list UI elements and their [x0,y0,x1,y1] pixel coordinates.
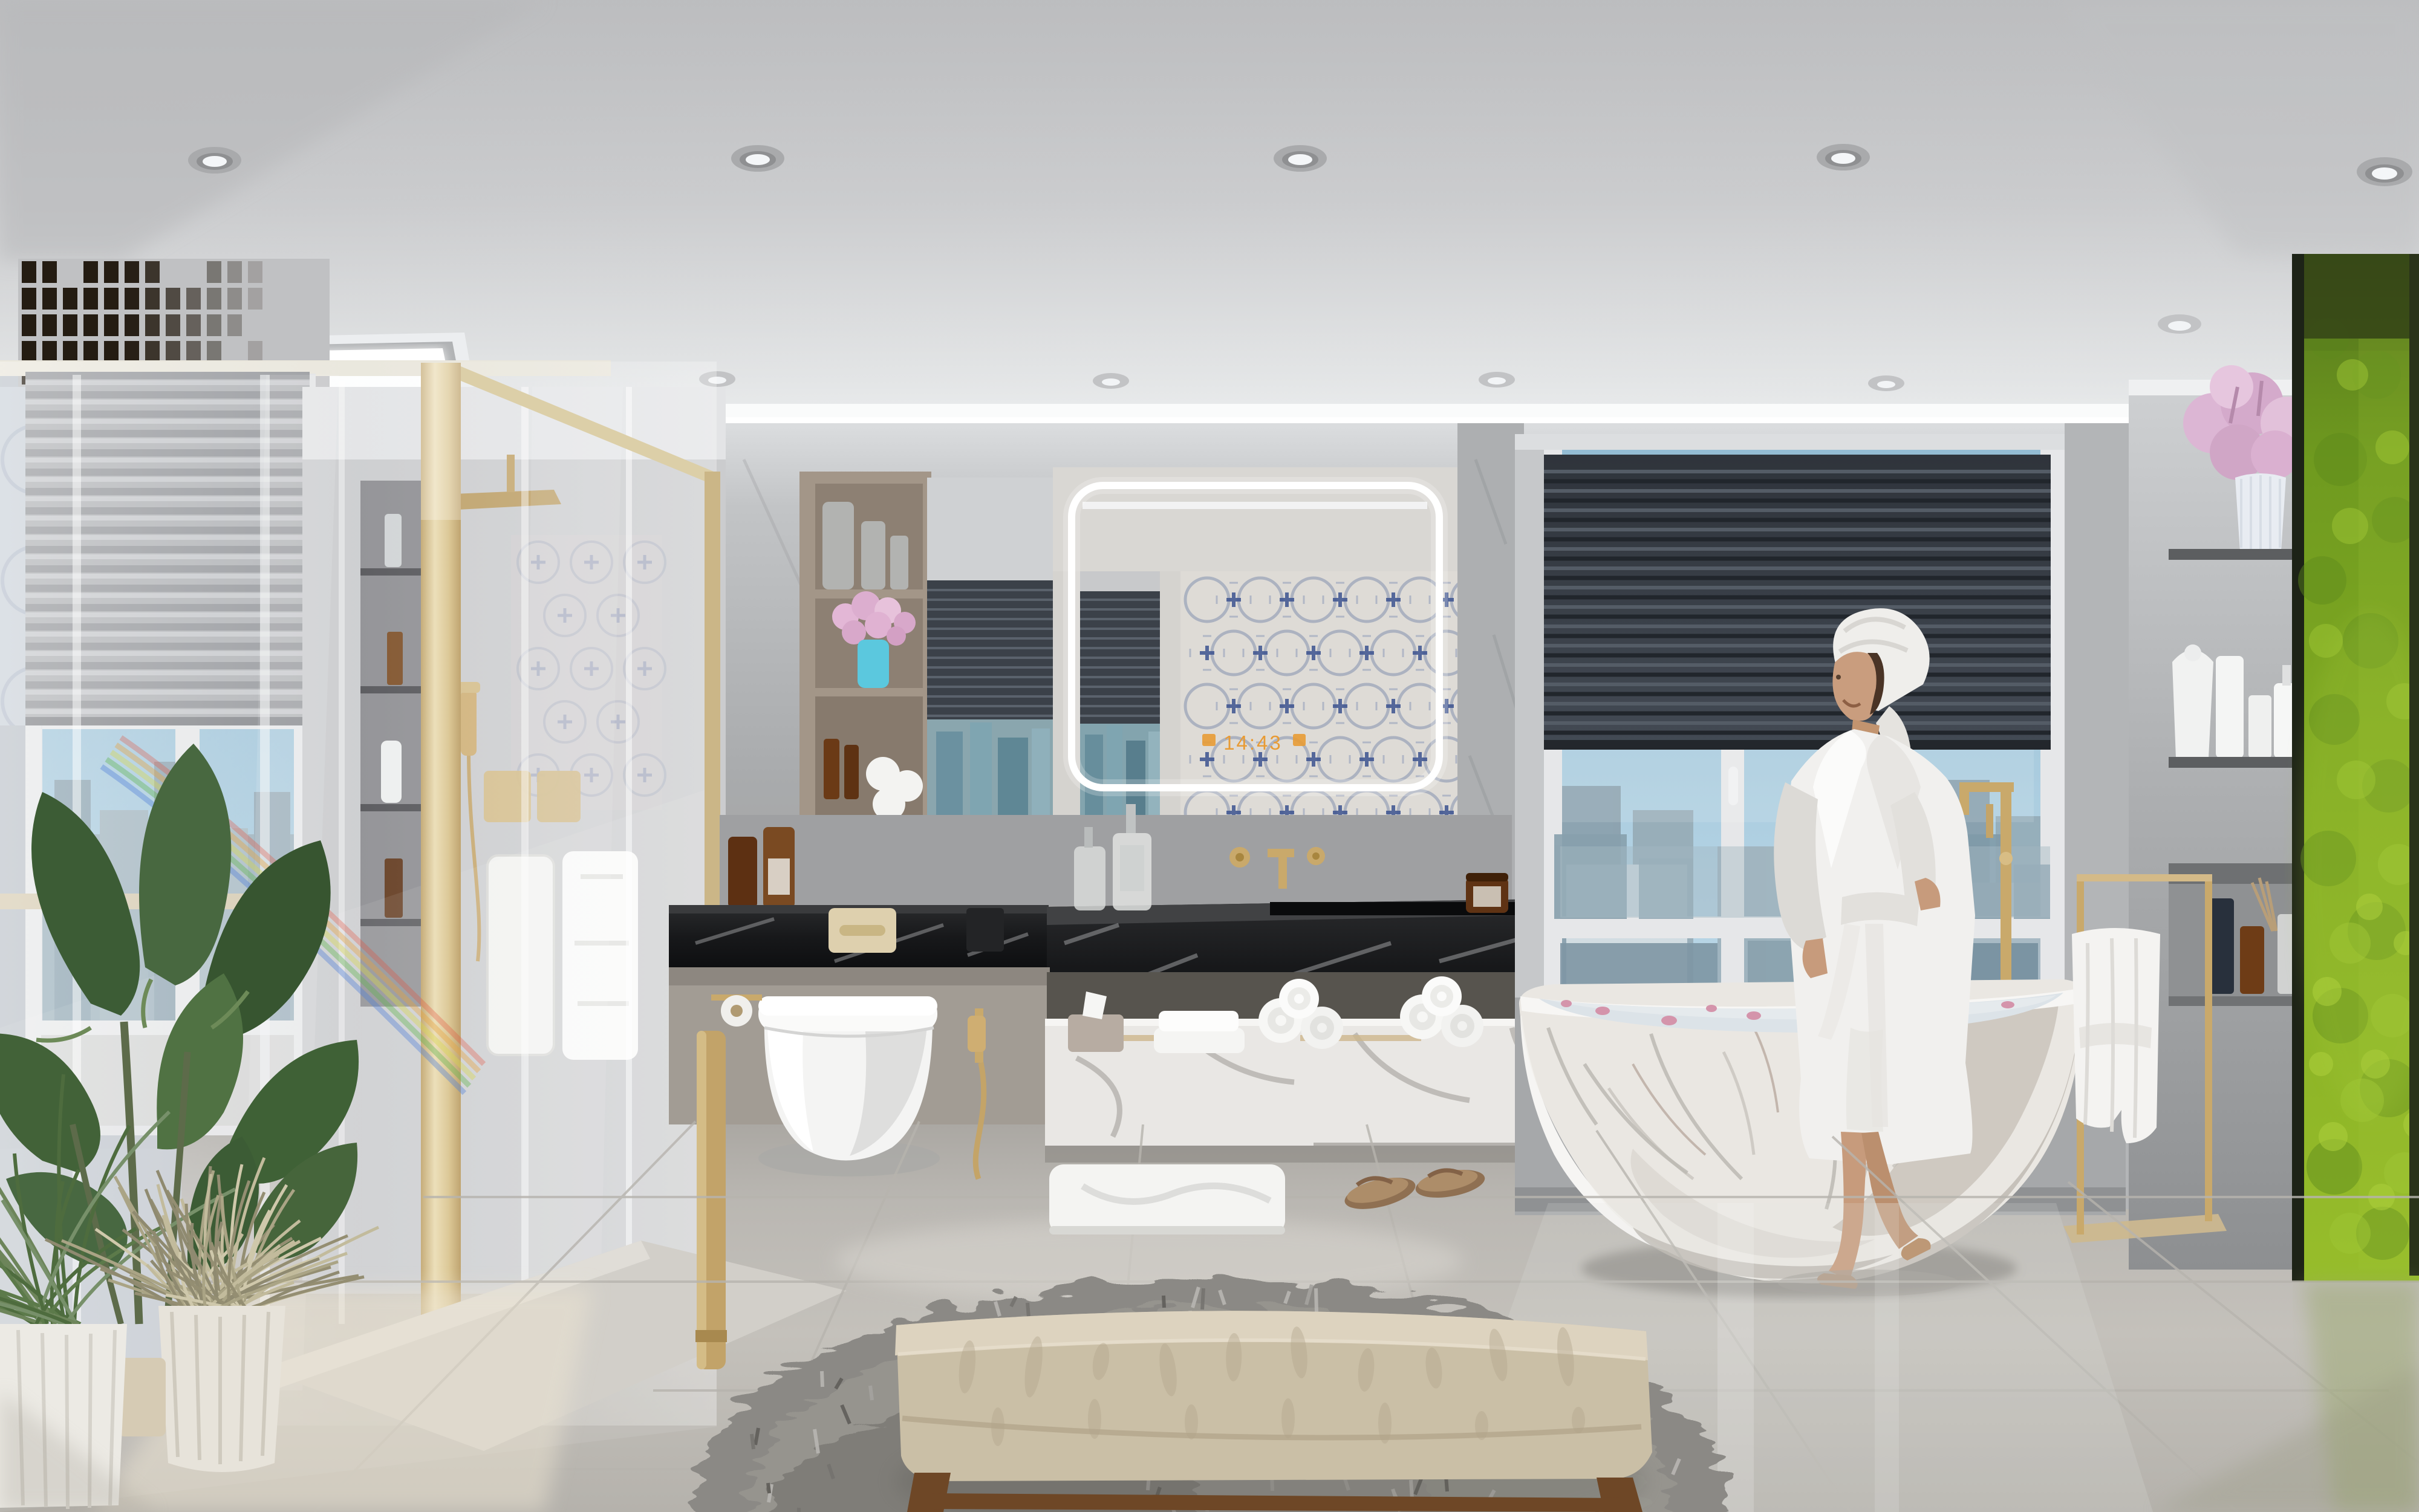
svg-text:14:43: 14:43 [1223,732,1283,754]
